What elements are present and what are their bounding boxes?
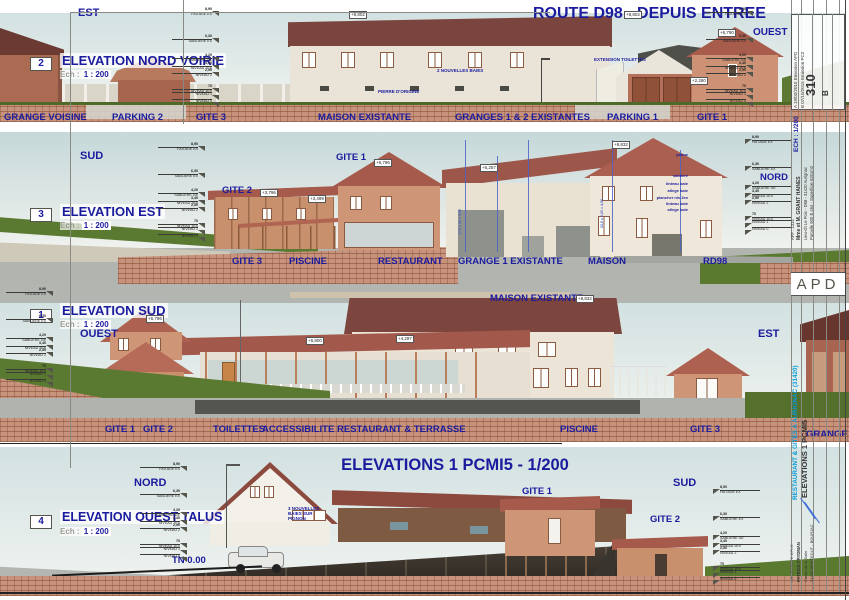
street-lamp-pole [226, 464, 227, 548]
revision-table-line [832, 14, 833, 110]
frame-vline [70, 12, 71, 468]
level-mark: NIVEAU 0 [172, 99, 220, 106]
grange-voisine-door [812, 352, 826, 396]
level-mark: 3,40NIVEAU 2EX [6, 342, 54, 349]
spot-elevation: +3,796 [260, 189, 278, 197]
level-mark: NIVEAU 0 [744, 227, 792, 234]
main-title: ELEVATIONS 1 PCMI5 - 1/200 [341, 456, 569, 474]
level-marker-column: 8,90FAITAGE EX6,30SABLIERE EX4,20SABLIER… [140, 463, 188, 561]
window [468, 52, 482, 68]
level-mark: NIVEAU 1 [140, 547, 188, 554]
frame-hline [70, 12, 550, 13]
label-grange1: GRANGE 1 EXISTANTE [458, 256, 563, 267]
separator-line [0, 443, 562, 444]
label-restaurant: RESTAURANT [378, 256, 443, 267]
titleblock-scale: ECH : 1/200 [793, 116, 800, 152]
dimension-line [465, 140, 466, 252]
label-piscine: PISCINE [560, 424, 598, 435]
scale-note: Ech : 1 : 200 [60, 70, 111, 79]
window [118, 338, 129, 351]
pignon-lower-wall [210, 522, 330, 546]
window [533, 368, 549, 388]
framing-annotation-column: pannesablierelinteau baieallege baieplan… [644, 152, 688, 212]
framing-annotation: sabliere [644, 173, 688, 178]
level-mark: NIVEAU 1 [712, 570, 760, 577]
level-flag-icon [745, 230, 752, 235]
level-marker-column: 8,90FAITAGE EX6,30SABLIERE EX4,20SABLIER… [706, 8, 754, 106]
window [264, 486, 274, 498]
framing-annotation: linteau baie [644, 201, 688, 206]
window [341, 52, 355, 68]
level-mark: 6,30SABLIERE EX [140, 490, 188, 497]
framing-annotation: linteau baie [644, 181, 688, 186]
titleblock-aff: AFF : 1314 [790, 219, 795, 240]
under-building-shadow [195, 400, 640, 414]
level-flag-icon [46, 318, 53, 323]
spot-elevation: +4,297 [396, 335, 414, 343]
terrace-furniture [652, 234, 682, 256]
spot-elevation: +6,796 [374, 159, 392, 167]
level-flag-icon [46, 291, 53, 296]
vent [500, 86, 509, 91]
sheet-border [845, 0, 846, 600]
vent [320, 86, 329, 91]
level-mark: 6,30SABLIERE EX [744, 163, 792, 170]
window [262, 208, 272, 220]
main-title-wrap: ELEVATIONS 1 PCMI5 - 1/200 [290, 456, 620, 475]
window [565, 368, 578, 387]
direction-right: EST [758, 328, 779, 340]
flag-pole [240, 300, 241, 388]
maison-existante-wall [290, 46, 610, 104]
elevation-number-box: 4 [30, 515, 52, 529]
level-flag-icon [745, 139, 752, 144]
glass-pane [470, 526, 488, 534]
architect-address1: Camin de la Salle [803, 551, 808, 582]
revision-letter: B [821, 90, 830, 96]
level-flag-icon [713, 516, 720, 521]
grange1-opening [522, 236, 544, 257]
dimension-line [528, 140, 529, 252]
level-flag-icon [746, 72, 753, 77]
level-mark: 70NIVEAU 1EX [744, 213, 792, 220]
sheet-name: ELEVATIONS 1 PCMI5 [800, 420, 809, 498]
level-mark: NIVEAU 0 [140, 554, 188, 561]
level-mark: 2,50NIVEAU 2 [158, 204, 206, 211]
label-gite1: GITE 1 [105, 424, 135, 435]
level-flag-icon [212, 72, 219, 77]
label-rd98: RD98 [703, 256, 727, 267]
level-mark: 70NIVEAU 1EX [706, 85, 754, 92]
level-marker-column: 8,90FAITAGE EX6,30SABLIERE EX4,20SABLIER… [744, 136, 792, 234]
direction-left: OUEST [80, 328, 118, 340]
dimension-note: 23,5 x 0,20 = 4,50 [600, 199, 604, 228]
spot-elevation: +6,257 [480, 164, 498, 172]
elevation-number-box: 2 [30, 57, 52, 71]
level-mark: 8,90FAITAGE EX [712, 486, 760, 493]
level-mark: 4,20SABLIERE GE [712, 532, 760, 539]
level-flag-icon [212, 102, 219, 107]
level-flag-icon [713, 489, 720, 494]
level-mark: 70NIVEAU 1EX [172, 85, 220, 92]
level-mark: NIVEAU 0 [706, 99, 754, 106]
level-flag-icon [198, 146, 205, 151]
vent [455, 86, 464, 91]
level-mark: 8,90FAITAGE EX [140, 463, 188, 470]
level-mark: 6,30SABLIERE EX [6, 315, 54, 322]
revision-table-line [798, 14, 799, 110]
level-flag-icon [180, 493, 187, 498]
level-flag-icon [46, 382, 53, 387]
level-flag-icon [198, 173, 205, 178]
level-mark: 3,40NIVEAU 2EX [158, 197, 206, 204]
label-piscine: PISCINE [289, 256, 327, 267]
label-gite2-top: GITE 2 [222, 185, 252, 196]
window [588, 368, 601, 387]
architect-name: PATRICK FRYDMAN [796, 542, 801, 582]
titleblock-lieu: Lieu-dit Le Poix - D98 - 31420 Aurignac [803, 167, 808, 240]
window [700, 220, 712, 238]
label-parking1: PARKING 1 [607, 112, 658, 123]
spot-elevation: +6,800 [306, 337, 324, 345]
vent [365, 86, 374, 91]
level-flag-icon [198, 207, 205, 212]
level-mark: 8,90FAITAGE EX [706, 8, 754, 15]
level-flag-icon [745, 166, 752, 171]
level-marker-column: 8,90FAITAGE EX6,30SABLIERE EX4,20SABLIER… [6, 288, 54, 386]
window [250, 486, 260, 498]
piscine-fence [610, 366, 666, 396]
granges-door [663, 77, 691, 104]
dimension-line [612, 140, 613, 252]
level-mark: 3,40NIVEAU 2EX [172, 62, 220, 69]
level-mark: 6,30SABLIERE EX [712, 513, 760, 520]
label-gite3: GITE 3 [690, 424, 720, 435]
level-mark: 8,90FAITAGE EX [6, 288, 54, 295]
direction-right: OUEST [753, 27, 787, 38]
level-marker-column: 8,90FAITAGE EX6,30SABLIERE EX4,20SABLIER… [172, 8, 220, 106]
label-accessibilite: ACCESSIBILITE [262, 424, 334, 435]
level-mark: 2,50NIVEAU 2 [706, 69, 754, 76]
spot-elevation: +6,796 [146, 315, 164, 323]
spot-elevation: +8,832 [612, 141, 630, 149]
window [350, 196, 362, 210]
level-flag-icon [713, 580, 720, 585]
level-mark: 2,50NIVEAU 2 [744, 197, 792, 204]
level-mark: 4,20SABLIERE GE [158, 189, 206, 196]
scale-value: 1 : 200 [82, 221, 111, 230]
level-mark: 4,20SABLIERE GE [172, 54, 220, 61]
level-mark: 6,30SABLIERE EX [706, 35, 754, 42]
frame-vline [183, 0, 184, 124]
glass-pane [390, 522, 408, 530]
level-marker-column: 8,90FAITAGE EX6,30SABLIERE EX4,20SABLIER… [712, 486, 760, 584]
scale-value: 1 : 200 [82, 70, 111, 79]
level-mark: 4,20SABLIERE GE [744, 182, 792, 189]
granges-door [632, 77, 660, 104]
project-name: RESTAURANT & GITES A AURIGNAC (31420) [792, 365, 799, 500]
label-maison-existante: MAISON EXISTANTE [318, 112, 411, 123]
architect-address2: 31430 MONTEGUT - BOURJAC [809, 524, 814, 582]
level-mark: 70NIVEAU 1EX [712, 563, 760, 570]
level-mark: 4,20SABLIERE GE [706, 54, 754, 61]
level-mark: 70NIVEAU 1EX [158, 220, 206, 227]
spot-elevation: +8,802 [624, 11, 642, 19]
annotation-baies: 2 NOUVELLES BAIES [437, 68, 483, 73]
spot-elevation: +3,499 [308, 195, 326, 203]
architect-title: ARCHITECTE DPLG [789, 544, 794, 582]
level-mark: NIVEAU 0 [6, 379, 54, 386]
car-cabin [238, 546, 268, 557]
level-mark: NIVEAU 1 [706, 92, 754, 99]
level-flag-icon [713, 550, 720, 555]
phase-badge: APD [791, 272, 845, 296]
label-gite3: GITE 3 [196, 112, 226, 123]
annotation-toilettes: EXTENSION TOILETTES [594, 57, 646, 62]
level-flag-icon [745, 200, 752, 205]
scale-note: Ech : 1 : 200 [60, 221, 111, 230]
pergola-posts [238, 226, 338, 249]
label-toilettes: TOILETTES [213, 424, 265, 435]
window [296, 208, 306, 220]
label-maison-top: MAISON EXISTANTE [490, 293, 583, 304]
level-flag-icon [746, 102, 753, 107]
window [428, 52, 442, 68]
bottom-border-line [0, 592, 849, 594]
level-flag-icon [180, 527, 187, 532]
titleblock-parcelle: Parcelle 900 E 464 - Superficie 6261m2 [809, 166, 814, 240]
level-mark: 2,50NIVEAU 2 [712, 547, 760, 554]
window [380, 52, 394, 68]
scale-label: Ech : [60, 527, 80, 536]
level-mark: 70NIVEAU 1EX [140, 540, 188, 547]
window [228, 208, 238, 220]
label-gite1-top: GITE 1 [336, 152, 366, 163]
scale-note: Ech : 1 : 200 [60, 527, 111, 536]
window [380, 196, 392, 210]
framing-annotation: panne [644, 152, 688, 157]
level-flag-icon [746, 11, 753, 16]
label-parking2: PARKING 2 [112, 112, 163, 123]
direction-right: SUD [673, 477, 696, 489]
label-gite2: GITE 2 [650, 514, 680, 525]
level-flag-icon [198, 237, 205, 242]
level-mark: NIVEAU 0 [158, 234, 206, 241]
dimension-note: 17,5 x 20 = 3,50 [458, 209, 462, 235]
label-gite2: GITE 2 [143, 424, 173, 435]
elevation-number-box: 3 [30, 208, 52, 222]
gite2-door [655, 554, 667, 576]
level-mark: 2,50NIVEAU 2 [172, 69, 220, 76]
annotation-baies: 3 NOUVELLES BAIES SUR PIGNON [288, 506, 324, 521]
level-marker-column: 8,90FAITAGE EX6,30SABLIERE EX4,20SABLIER… [158, 143, 206, 241]
elevation-title: ELEVATION EST [60, 204, 165, 219]
level-mark: NIVEAU 1 [6, 372, 54, 379]
label-granges: GRANGES 1 & 2 EXISTANTES [455, 112, 590, 123]
titleblock-client: Mme et M. GRANT HAINES [796, 176, 802, 240]
level-mark: 2,50NIVEAU 2 [140, 524, 188, 531]
framing-annotation: allege baie [644, 188, 688, 193]
car-wheel [272, 564, 281, 573]
level-mark: 8,90FAITAGE EX [744, 136, 792, 143]
framing-annotation: allege baie [644, 207, 688, 212]
level-mark: 6,30SABLIERE EX [158, 170, 206, 177]
elevation-sheet: { "colors": { "label_navy": "#1b1b9e", "… [0, 0, 849, 600]
level-flag-icon [180, 557, 187, 562]
spot-elevation: +8,832 [576, 295, 594, 303]
window [302, 52, 316, 68]
level-mark: 3,40NIVEAU 2EX [140, 517, 188, 524]
label-restaurant-terrasse: RESTAURANT & TERRASSE [337, 424, 466, 435]
label-maison: MAISON [588, 256, 626, 267]
window [636, 218, 648, 238]
window [510, 52, 524, 68]
direction-left: EST [78, 7, 99, 19]
level-mark: 4,20SABLIERE GE [6, 334, 54, 341]
level-flag-icon [212, 38, 219, 43]
sheet-number: 310 [803, 74, 818, 96]
label-gite1: GITE 1 [697, 112, 727, 123]
level-mark: 6,30SABLIERE EX [172, 35, 220, 42]
annotation-pierre: PIERRE D'ORIGINE [378, 89, 419, 94]
level-mark: 3,40NIVEAU 2EX [706, 62, 754, 69]
level-mark: 8,90FAITAGE EX [158, 143, 206, 150]
label-gite1: GITE 1 [522, 486, 552, 497]
direction-left: SUD [80, 150, 103, 162]
level-flag-icon [746, 38, 753, 43]
level-mark: NIVEAU 0 [712, 577, 760, 584]
framing-annotation: plancher niv 2ex [644, 195, 688, 200]
level-mark: NIVEAU 1 [158, 227, 206, 234]
scale-value: 1 : 200 [82, 527, 111, 536]
label-grange-voisine: GRANGE VOISINE [4, 112, 87, 123]
level-mark: NIVEAU 1 [744, 220, 792, 227]
street-lamp-arm [226, 464, 240, 466]
revision-row-a: A 19/02/2015 Emission APD [793, 52, 798, 108]
level-flag-icon [46, 352, 53, 357]
window [538, 342, 556, 357]
level-mark: 70NIVEAU 1EX [6, 365, 54, 372]
level-mark: 2,50NIVEAU 2 [6, 349, 54, 356]
level-flag-icon [180, 466, 187, 471]
street-lamp-arm [541, 58, 550, 60]
label-gite3: GITE 3 [232, 256, 262, 267]
street-lamp-pole [541, 58, 542, 105]
gite1-door [548, 518, 561, 544]
level-mark: NIVEAU 1 [172, 92, 220, 99]
glazed-bay [344, 222, 434, 248]
level-mark: 4,20SABLIERE GE [140, 509, 188, 516]
